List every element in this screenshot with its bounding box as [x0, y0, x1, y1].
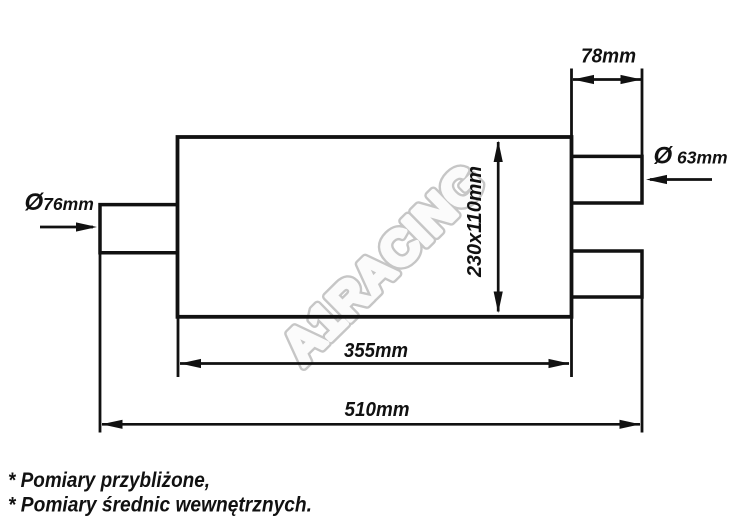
svg-text:* Pomiary średnic wewnętrznych: * Pomiary średnic wewnętrznych. — [8, 493, 312, 517]
svg-text:510mm: 510mm — [345, 398, 410, 421]
svg-text:Ø 63mm: Ø 63mm — [654, 143, 728, 170]
svg-text:Ø76mm: Ø76mm — [25, 189, 94, 216]
svg-text:* Pomiary przybliżone,: * Pomiary przybliżone, — [8, 468, 210, 492]
svg-text:230x110mm: 230x110mm — [463, 166, 486, 278]
svg-text:78mm: 78mm — [581, 45, 636, 68]
svg-text:355mm: 355mm — [344, 339, 408, 362]
